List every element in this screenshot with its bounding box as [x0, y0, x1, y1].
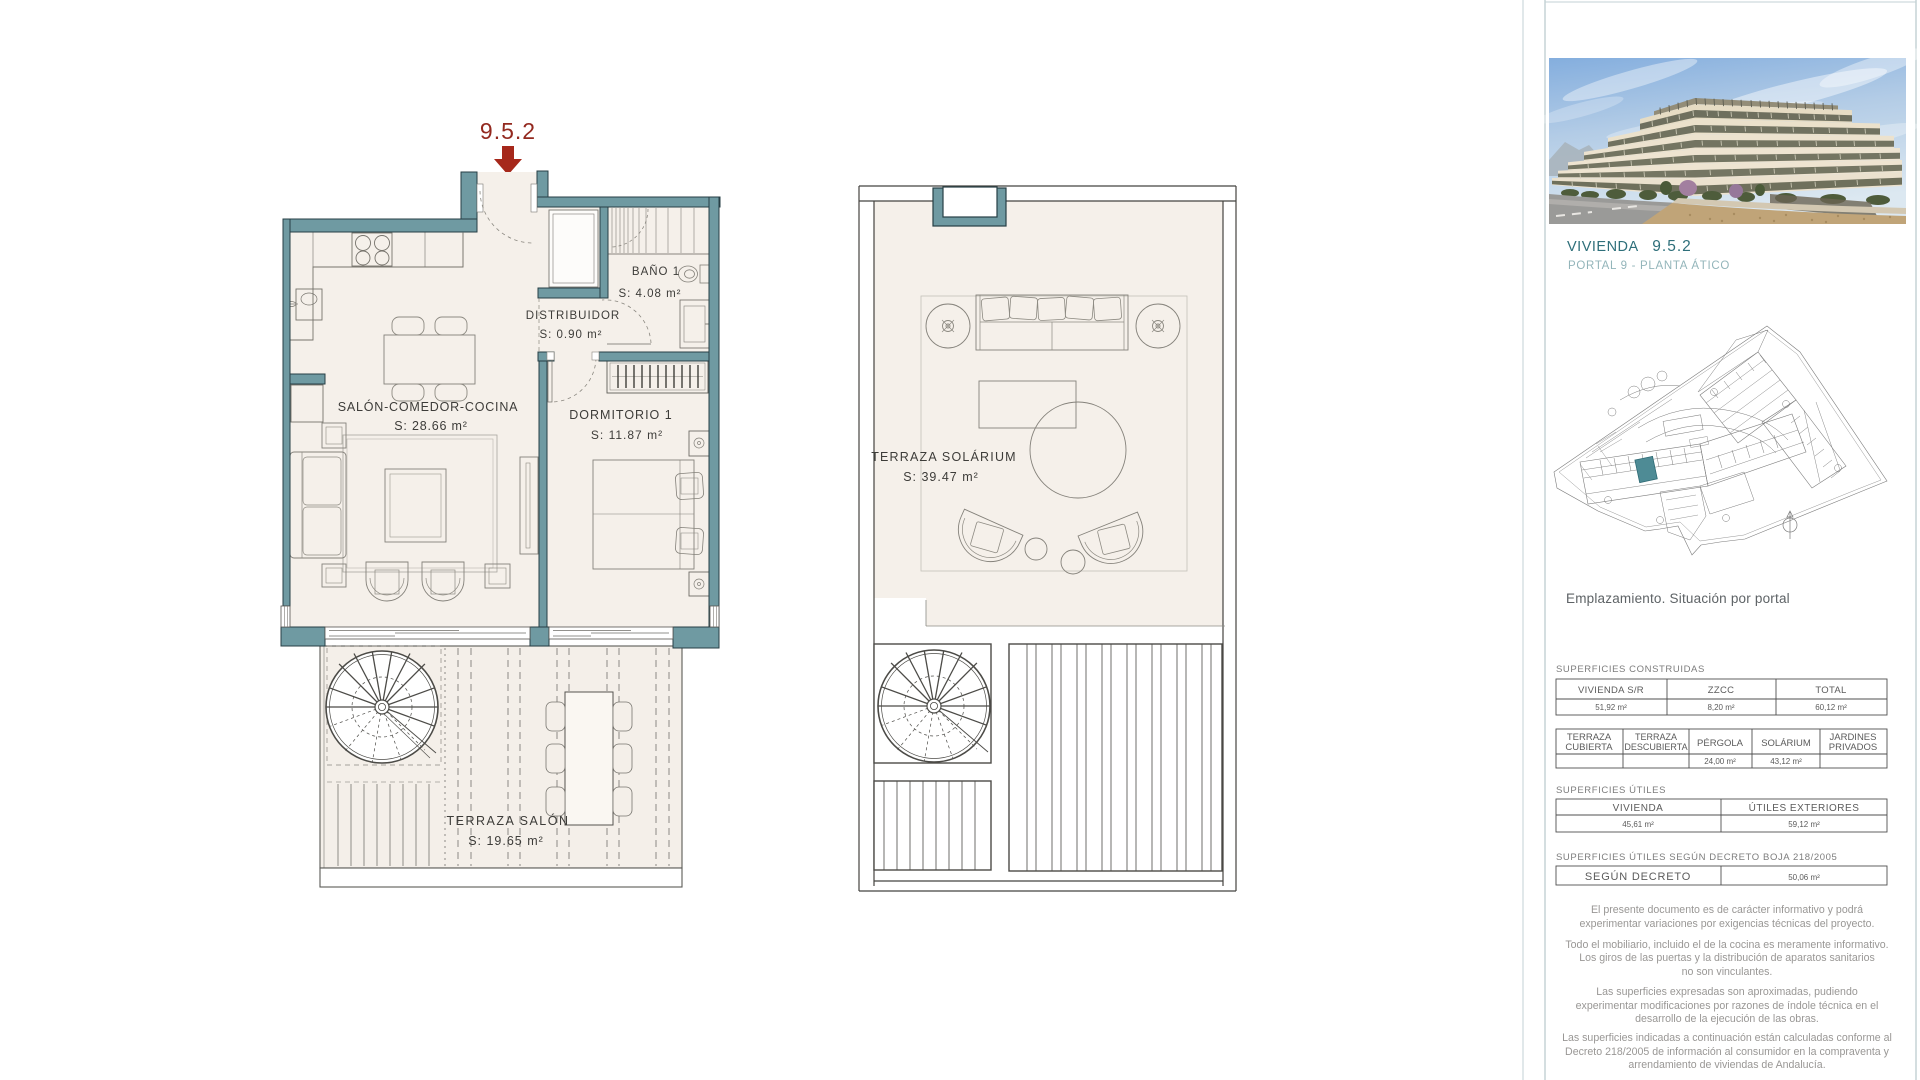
svg-text:ZZCC: ZZCC [1708, 685, 1735, 696]
svg-text:SEGÚN DECRETO: SEGÚN DECRETO [1585, 870, 1691, 883]
svg-text:Las superficies expresadas son: Las superficies expresadas son aproximad… [1596, 986, 1858, 998]
svg-text:Los giros de las puertas y la: Los giros de las puertas y la distribuci… [1579, 952, 1875, 964]
svg-text:S: 11.87 m²: S: 11.87 m² [591, 428, 663, 442]
svg-text:VIVIENDA: VIVIENDA [1613, 803, 1664, 814]
svg-text:Todo el mobiliario, incluido e: Todo el mobiliario, incluido el de la co… [1565, 939, 1888, 951]
svg-text:CUBIERTA: CUBIERTA [1565, 742, 1613, 753]
svg-text:BAÑO 1: BAÑO 1 [632, 265, 680, 278]
svg-text:SUPERFICIES CONSTRUIDAS: SUPERFICIES CONSTRUIDAS [1556, 664, 1705, 675]
svg-text:45,61 m²: 45,61 m² [1622, 820, 1654, 829]
svg-text:TERRAZA SOLÁRIUM: TERRAZA SOLÁRIUM [871, 449, 1017, 464]
svg-text:PORTAL 9 - PLANTA ÁTICO: PORTAL 9 - PLANTA ÁTICO [1568, 259, 1730, 272]
svg-text:Decreto 218/2005 de informació: Decreto 218/2005 de información al consu… [1565, 1046, 1890, 1058]
svg-text:SALÓN-COMEDOR-COCINA: SALÓN-COMEDOR-COCINA [338, 399, 519, 414]
svg-text:PÉRGOLA: PÉRGOLA [1697, 738, 1744, 749]
svg-text:no son vinculantes.: no son vinculantes. [1682, 966, 1773, 978]
svg-text:S: 4.08 m²: S: 4.08 m² [618, 288, 681, 300]
svg-text:El presente documento es de ca: El presente documento es de carácter inf… [1591, 904, 1863, 916]
svg-text:S: 0.90 m²: S: 0.90 m² [539, 329, 602, 341]
svg-text:DESCUBIERTA: DESCUBIERTA [1624, 742, 1687, 752]
svg-text:51,92 m²: 51,92 m² [1595, 703, 1627, 712]
svg-text:S: 19.65 m²: S: 19.65 m² [468, 834, 544, 848]
svg-text:59,12 m²: 59,12 m² [1788, 820, 1820, 829]
svg-text:60,12 m²: 60,12 m² [1815, 703, 1847, 712]
svg-text:SUPERFICIES ÚTILES SEGÚN DECRE: SUPERFICIES ÚTILES SEGÚN DECRETO BOJA 21… [1556, 852, 1837, 863]
svg-text:43,12 m²: 43,12 m² [1770, 757, 1802, 766]
svg-text:VIVIENDA S/R: VIVIENDA S/R [1578, 685, 1644, 696]
svg-text:TOTAL: TOTAL [1815, 685, 1846, 696]
svg-text:TERRAZA: TERRAZA [1635, 732, 1677, 742]
svg-text:arrendamiento de viviendas de: arrendamiento de viviendas de Andalucía. [1628, 1059, 1825, 1071]
svg-text:PRIVADOS: PRIVADOS [1829, 742, 1877, 753]
svg-text:24,00 m²: 24,00 m² [1704, 757, 1736, 766]
svg-text:VIVIENDA 9.5.2: VIVIENDA 9.5.2 [1567, 238, 1692, 255]
svg-text:TERRAZA SALÓN: TERRAZA SALÓN [447, 813, 570, 828]
svg-text:9.5.2: 9.5.2 [480, 118, 536, 144]
svg-text:SOLÁRIUM: SOLÁRIUM [1761, 738, 1811, 749]
svg-text:experimentar modificaciones po: experimentar modificaciones por razones … [1576, 1000, 1879, 1012]
svg-text:S: 39.47 m²: S: 39.47 m² [903, 470, 979, 484]
svg-text:experimentar variaciones por e: experimentar variaciones por exigencias … [1579, 918, 1874, 930]
svg-text:DISTRIBUIDOR: DISTRIBUIDOR [526, 310, 620, 322]
svg-text:Las superficies indicadas a co: Las superficies indicadas a continuación… [1562, 1032, 1892, 1044]
svg-text:ÚTILES EXTERIORES: ÚTILES EXTERIORES [1749, 801, 1860, 814]
svg-text:Emplazamiento. Situación por p: Emplazamiento. Situación por portal [1566, 591, 1790, 606]
svg-text:desarrollo de la ejecución de: desarrollo de la ejecución de las obras. [1635, 1013, 1819, 1025]
svg-text:8,20 m²: 8,20 m² [1707, 703, 1734, 712]
svg-text:DORMITORIO 1: DORMITORIO 1 [569, 408, 672, 422]
svg-text:S: 28.66 m²: S: 28.66 m² [394, 419, 467, 433]
svg-text:50,06 m²: 50,06 m² [1788, 873, 1820, 882]
svg-text:SUPERFICIES ÚTILES: SUPERFICIES ÚTILES [1556, 785, 1666, 796]
